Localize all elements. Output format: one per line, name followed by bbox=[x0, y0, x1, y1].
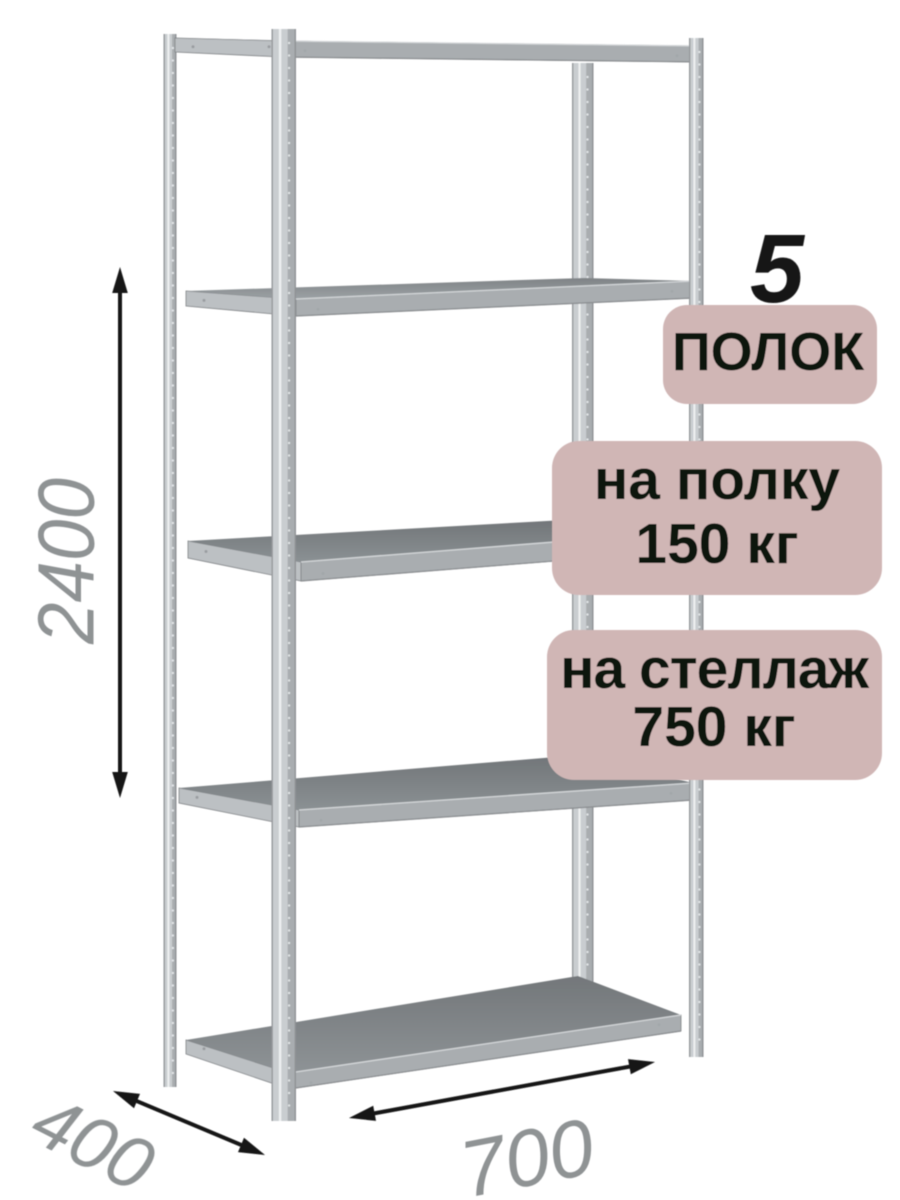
svg-text:750 кг: 750 кг bbox=[632, 695, 795, 759]
svg-text:150 кг: 150 кг bbox=[635, 512, 798, 576]
svg-text:2400: 2400 bbox=[22, 478, 111, 645]
svg-text:ПОЛОК: ПОЛОК bbox=[672, 322, 865, 382]
svg-text:на полку: на полку bbox=[594, 448, 841, 512]
svg-text:на стеллаж: на стеллаж bbox=[560, 637, 869, 701]
